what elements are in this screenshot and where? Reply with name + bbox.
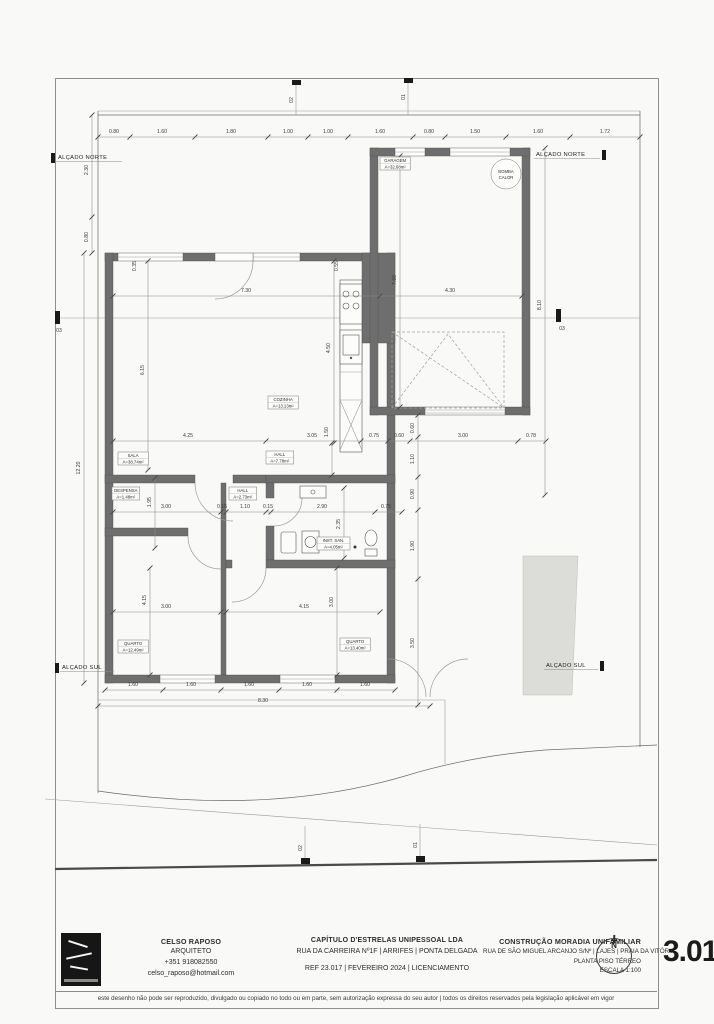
- dimension-label: 4.15: [142, 595, 148, 605]
- elevation-label: ALÇADO SUL: [544, 661, 604, 671]
- toilet: [365, 530, 377, 546]
- dimension-label: 3.00: [329, 597, 335, 607]
- dimension-label: 1.60: [302, 682, 312, 688]
- dimension-label: 3.00: [161, 604, 171, 610]
- svg-text:BOMBA: BOMBA: [498, 169, 514, 174]
- svg-text:A=2.73m²: A=2.73m²: [233, 495, 252, 500]
- washbasin: [281, 532, 296, 553]
- svg-text:A=4.05m²: A=4.05m²: [324, 545, 343, 550]
- elevation-label: ALÇADO NORTE: [51, 153, 122, 163]
- dimension-label: 8.30: [258, 698, 268, 704]
- svg-text:INST. SAN.: INST. SAN.: [323, 538, 345, 543]
- room-label: GARAGEMA=32.68m²: [380, 157, 410, 170]
- room-label: HALLA=7.78m²: [266, 451, 294, 464]
- dimension-label: 0.75: [369, 433, 379, 439]
- section-marker-label: 02: [298, 845, 304, 851]
- room-label: SALAA=38.74m²: [118, 452, 148, 465]
- svg-text:QUARTO: QUARTO: [124, 641, 143, 646]
- svg-text:ALÇADO NORTE: ALÇADO NORTE: [58, 155, 107, 161]
- svg-text:DESPENSA: DESPENSA: [114, 488, 138, 493]
- dimension-label: 0.60: [394, 433, 404, 439]
- svg-text:ALÇADO SUL: ALÇADO SUL: [62, 665, 102, 671]
- architect-email: celso_raposo@hotmail.com: [107, 969, 275, 980]
- stove: [340, 284, 362, 324]
- dimension-label: 1.10: [240, 504, 250, 510]
- driveway-strip: [523, 556, 578, 695]
- room-label: QUARTOA=12.49m²: [118, 640, 148, 653]
- svg-text:COZINHA: COZINHA: [273, 397, 292, 402]
- room-label: HALLA=2.73m²: [229, 487, 257, 500]
- dimension-label: 1.00: [283, 129, 293, 135]
- dimension-label: 1.72: [600, 129, 610, 135]
- svg-text:GARAGEM: GARAGEM: [384, 158, 406, 163]
- dimension-label: 4.50: [326, 343, 332, 353]
- section-marker-label: 03: [56, 328, 62, 334]
- architect-phone: +351 918082550: [107, 958, 275, 969]
- room-label: COZINHAA=13.13m²: [268, 396, 298, 409]
- dimension-label: 1.60: [375, 129, 385, 135]
- yard-gate: [388, 659, 468, 697]
- dimension-label: 2.30: [84, 165, 90, 175]
- room-label: QUARTOA=13.40m²: [340, 638, 370, 651]
- svg-text:ALÇADO NORTE: ALÇADO NORTE: [536, 152, 585, 158]
- svg-text:A=7.78m²: A=7.78m²: [270, 459, 289, 464]
- dimension-label: 0.60: [410, 423, 416, 433]
- dimension-label: 0.15: [263, 504, 273, 510]
- office-name: CAPÍTULO D'ESTRELAS UNIPESSOAL LDA: [283, 936, 491, 947]
- svg-text:A=1.48m²: A=1.48m²: [116, 495, 135, 500]
- dimension-label: 1.60: [186, 682, 196, 688]
- svg-text:A=38.74m²: A=38.74m²: [123, 460, 145, 465]
- dimension-label: 6.15: [140, 365, 146, 375]
- svg-text:A=13.40m²: A=13.40m²: [345, 646, 367, 651]
- dimension-label: 0.35: [132, 261, 138, 271]
- dimension-label: 0.78: [526, 433, 536, 439]
- dimension-label: 1.60: [244, 682, 254, 688]
- svg-text:ALÇADO SUL: ALÇADO SUL: [546, 663, 586, 669]
- dimension-label: 3.05: [307, 433, 317, 439]
- dimension-label: 2.35: [336, 519, 342, 529]
- dimension-label: 1.60: [157, 129, 167, 135]
- architect-name: CELSO RAPOSO: [107, 936, 275, 947]
- project-ref: REF 23.017 | FEVEREIRO 2024 | LICENCIAME…: [283, 964, 491, 975]
- svg-text:HALL: HALL: [274, 452, 285, 457]
- dimension-label: 1.60: [533, 129, 543, 135]
- dimension-label: 4.15: [299, 604, 309, 610]
- dimension-label: 0.80: [424, 129, 434, 135]
- dimension-label: 8.10: [537, 300, 543, 310]
- title-block: CELSO RAPOSO ARQUITETO +351 918082550 ce…: [55, 928, 657, 990]
- north-indicator: N: [596, 938, 632, 974]
- svg-text:A=32.68m²: A=32.68m²: [385, 165, 407, 170]
- architect-role: ARQUITETO: [107, 947, 275, 958]
- street-line: [55, 860, 657, 869]
- floor-plan-drawing: 0.801.601.801.001.001.600.801.501.601.72…: [0, 0, 714, 1024]
- sheet-number: 3.01: [663, 932, 714, 972]
- dimension-label: 7.60: [392, 275, 398, 285]
- dimension-label: 4.30: [445, 288, 455, 294]
- office-info: CAPÍTULO D'ESTRELAS UNIPESSOAL LDA RUA D…: [283, 936, 491, 975]
- dimension-label: 1.50: [470, 129, 480, 135]
- office-address: RUA DA CARREIRA Nº1F | ARRIFES | PONTA D…: [283, 947, 491, 958]
- dimension-label: 1.00: [323, 129, 333, 135]
- dimension-label: 4.25: [183, 433, 193, 439]
- svg-text:HALL: HALL: [237, 488, 248, 493]
- section-marker-label: 02: [289, 97, 295, 103]
- section-marker-label: 03: [559, 326, 565, 332]
- windows: [118, 148, 510, 683]
- svg-text:QUARTO: QUARTO: [346, 639, 365, 644]
- elevation-label: ALÇADO NORTE: [534, 150, 606, 160]
- room-label: DESPENSAA=1.48m²: [112, 487, 140, 500]
- section-marker-label: 01: [413, 842, 419, 848]
- north-letter: N: [611, 941, 617, 950]
- dimension-label: 1.60: [128, 682, 138, 688]
- dimension-label: 7.30: [241, 288, 251, 294]
- dimension-label: 1.10: [410, 454, 416, 464]
- drawing-sheet: 0.801.601.801.001.001.600.801.501.601.72…: [0, 0, 714, 1024]
- svg-text:CALOR: CALOR: [499, 175, 514, 180]
- exterior-walls: [105, 148, 530, 683]
- front-door-opening: [215, 253, 253, 261]
- dimension-label: 2.90: [317, 504, 327, 510]
- svg-text:A=12.49m²: A=12.49m²: [123, 648, 145, 653]
- kitchen-fixtures: [340, 280, 362, 452]
- architect-logo: [61, 933, 101, 986]
- equipment-label: BOMBACALOR: [491, 159, 521, 189]
- copyright-disclaimer: este desenho não pode ser reproduzido, d…: [55, 991, 657, 1002]
- car-space-dashed: [392, 332, 504, 408]
- dimension-label: 0.80: [84, 232, 90, 242]
- svg-text:SALA: SALA: [128, 453, 139, 458]
- svg-text:A=13.13m²: A=13.13m²: [273, 404, 295, 409]
- dimension-label: 1.90: [410, 541, 416, 551]
- section-marks: [55, 78, 640, 864]
- room-label: INST. SAN.A=4.05m²: [317, 537, 350, 550]
- dimension-label: 3.00: [161, 504, 171, 510]
- architect-info: CELSO RAPOSO ARQUITETO +351 918082550 ce…: [107, 936, 275, 980]
- dimension-label: 1.80: [226, 129, 236, 135]
- dimension-label: 1.95: [147, 497, 153, 507]
- dimension-label: 0.75: [381, 504, 391, 510]
- dimension-label: 12.20: [76, 461, 82, 474]
- section-marker-label: 01: [401, 94, 407, 100]
- dimension-label: 0.55: [334, 261, 340, 271]
- dimension-label: 1.60: [360, 682, 370, 688]
- dimension-label: 0.15: [217, 504, 227, 510]
- dimension-label: 3.50: [410, 638, 416, 648]
- dimension-label: 1.50: [324, 427, 330, 437]
- dimension-label: 3.00: [458, 433, 468, 439]
- dimension-label: 0.90: [410, 489, 416, 499]
- dimension-label: 0.80: [109, 129, 119, 135]
